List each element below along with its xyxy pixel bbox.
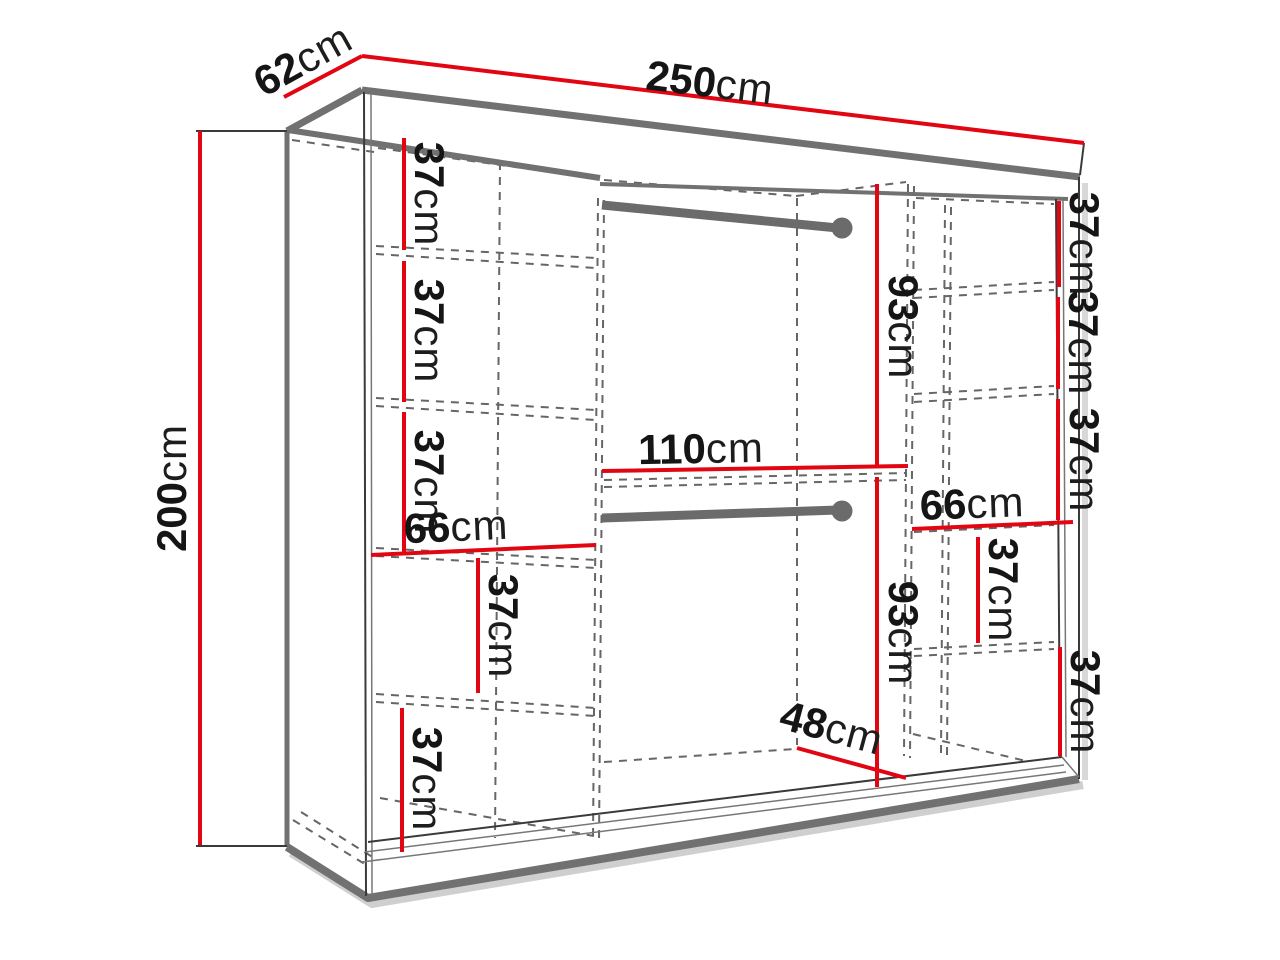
left-inner-edge <box>371 94 372 896</box>
base-corner-line <box>1062 757 1079 777</box>
hanging-rod-top <box>602 205 838 228</box>
dim-label-right-gap-1: 37cm <box>1061 192 1108 297</box>
dim-label-hanging-top: 93cm <box>880 275 927 380</box>
ceiling-front-edge <box>600 184 1068 199</box>
dim-label-depth: 62cm <box>246 14 360 106</box>
dash-shelf <box>376 694 596 708</box>
dim-label-right-gap-2: 37cm <box>1060 291 1107 396</box>
top-left-edge <box>287 90 362 131</box>
dim-label-left-gap-5: 37cm <box>404 727 451 832</box>
dim-label-right-gap-3: 37cm <box>1061 408 1108 513</box>
diagram-canvas: 62cm 250cm 200cm 37cm 37cm 37cm 66cm 37c… <box>0 0 1280 960</box>
left-inner-edge <box>364 92 366 896</box>
hanging-rod-bottom <box>602 510 838 518</box>
rod-end-cap <box>832 218 853 239</box>
dash-shelf <box>914 642 1054 649</box>
dash-shelf <box>914 290 1054 298</box>
rod-end-cap <box>832 501 853 522</box>
dash-shelf <box>914 282 1054 290</box>
dim-label-height: 200cm <box>148 424 195 552</box>
dim-label-right-width: 66cm <box>919 478 1025 529</box>
dim-label-center-width: 110cm <box>638 424 765 473</box>
dash-shelf <box>604 473 906 480</box>
dash-line <box>913 734 1026 761</box>
dash-shelf <box>914 394 1054 402</box>
dash-shelf <box>604 480 906 487</box>
hanging-rods <box>602 205 853 522</box>
dash-line <box>495 162 500 838</box>
dash-line <box>941 205 945 753</box>
dash-line <box>301 812 374 858</box>
wardrobe-dimension-diagram: 62cm 250cm 200cm 37cm 37cm 37cm 66cm 37c… <box>0 0 1280 960</box>
corner-tick <box>1080 143 1084 175</box>
dim-label-right-gap-5: 37cm <box>1062 650 1109 755</box>
dim-label-right-gap-4: 37cm <box>980 538 1027 643</box>
dimension-labels: 62cm 250cm 200cm 37cm 37cm 37cm 66cm 37c… <box>148 14 1109 832</box>
dim-label-left-gap-4: 37cm <box>480 574 527 679</box>
dim-label-hanging-bottom: 93cm <box>880 581 927 686</box>
dash-line <box>604 749 795 762</box>
dash-shelf <box>914 649 1054 656</box>
dim-label-left-gap-1: 37cm <box>406 142 453 247</box>
dim-label-left-width: 66cm <box>403 501 510 553</box>
dash-divider <box>593 198 598 840</box>
dim-label-bottom-depth: 48cm <box>775 691 888 764</box>
dim-label-width: 250cm <box>644 51 777 113</box>
dim-label-left-gap-2: 37cm <box>406 279 453 384</box>
dash-shelf <box>914 386 1054 394</box>
dash-shelf <box>376 702 596 716</box>
